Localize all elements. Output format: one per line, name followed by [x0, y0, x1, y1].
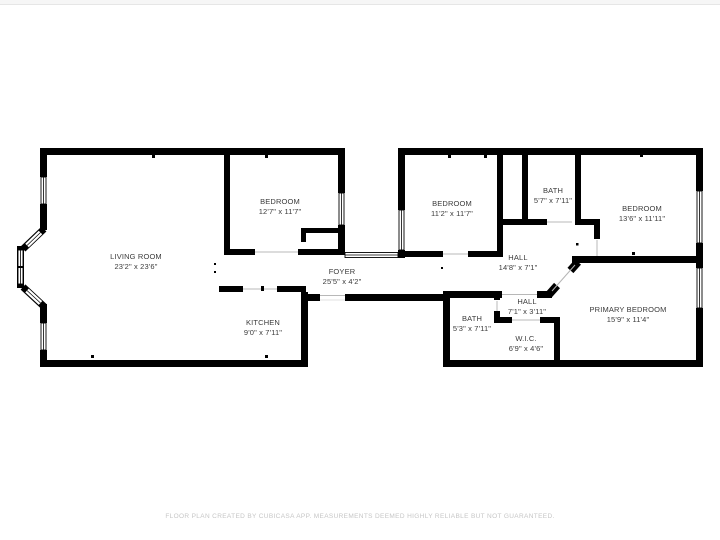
room-dims: 5'3" x 7'11": [453, 324, 491, 334]
room-name: BEDROOM: [431, 199, 473, 209]
room-name: W.I.C.: [509, 334, 543, 344]
room-name: FOYER: [323, 267, 362, 277]
room-dims: 7'1" x 3'11": [508, 307, 546, 317]
bay-window: [17, 229, 44, 307]
room-name: HALL: [499, 253, 538, 263]
room-name: BATH: [453, 314, 491, 324]
footer-disclaimer: FLOOR PLAN CREATED BY CUBICASA APP. MEAS…: [0, 513, 720, 520]
room-label-hall-1: HALL 14'8" x 7'1": [499, 253, 538, 272]
room-label-hall-2: HALL 7'1" x 3'11": [508, 297, 546, 316]
room-name: LIVING ROOM: [110, 252, 162, 262]
room-dims: 6'9" x 4'6": [509, 344, 543, 354]
room-dims: 13'6" x 11'11": [619, 214, 665, 224]
room-dims: 15'9" x 11'4": [590, 315, 667, 325]
room-dims: 12'7" x 11'7": [259, 207, 302, 217]
room-label-living-room: LIVING ROOM 23'2" x 23'6": [110, 252, 162, 271]
room-label-bath-2: BATH 5'3" x 7'11": [453, 314, 491, 333]
room-name: BEDROOM: [619, 204, 665, 214]
room-label-kitchen: KITCHEN 9'0" x 7'11": [244, 318, 282, 337]
room-dims: 14'8" x 7'1": [499, 263, 538, 273]
room-name: HALL: [508, 297, 546, 307]
room-label-wic: W.I.C. 6'9" x 4'6": [509, 334, 543, 353]
room-label-bedroom-3: BEDROOM 13'6" x 11'11": [619, 204, 665, 223]
room-label-bath-1: BATH 5'7" x 7'11": [534, 186, 572, 205]
room-label-primary-bedroom: PRIMARY BEDROOM 15'9" x 11'4": [590, 305, 667, 324]
room-name: KITCHEN: [244, 318, 282, 328]
room-label-foyer: FOYER 25'5" x 4'2": [323, 267, 362, 286]
room-dims: 9'0" x 7'11": [244, 328, 282, 338]
room-dims: 23'2" x 23'6": [110, 262, 162, 272]
room-name: BATH: [534, 186, 572, 196]
room-name: BEDROOM: [259, 197, 302, 207]
room-name: PRIMARY BEDROOM: [590, 305, 667, 315]
room-dims: 11'2" x 11'7": [431, 209, 473, 219]
room-dims: 5'7" x 7'11": [534, 196, 572, 206]
room-label-bedroom-1: BEDROOM 12'7" x 11'7": [259, 197, 302, 216]
room-label-bedroom-2: BEDROOM 11'2" x 11'7": [431, 199, 473, 218]
room-dims: 25'5" x 4'2": [323, 277, 362, 287]
diagonal-doorway: [549, 262, 578, 295]
floor-plan: LIVING ROOM 23'2" x 23'6" BEDROOM 12'7" …: [0, 0, 720, 540]
